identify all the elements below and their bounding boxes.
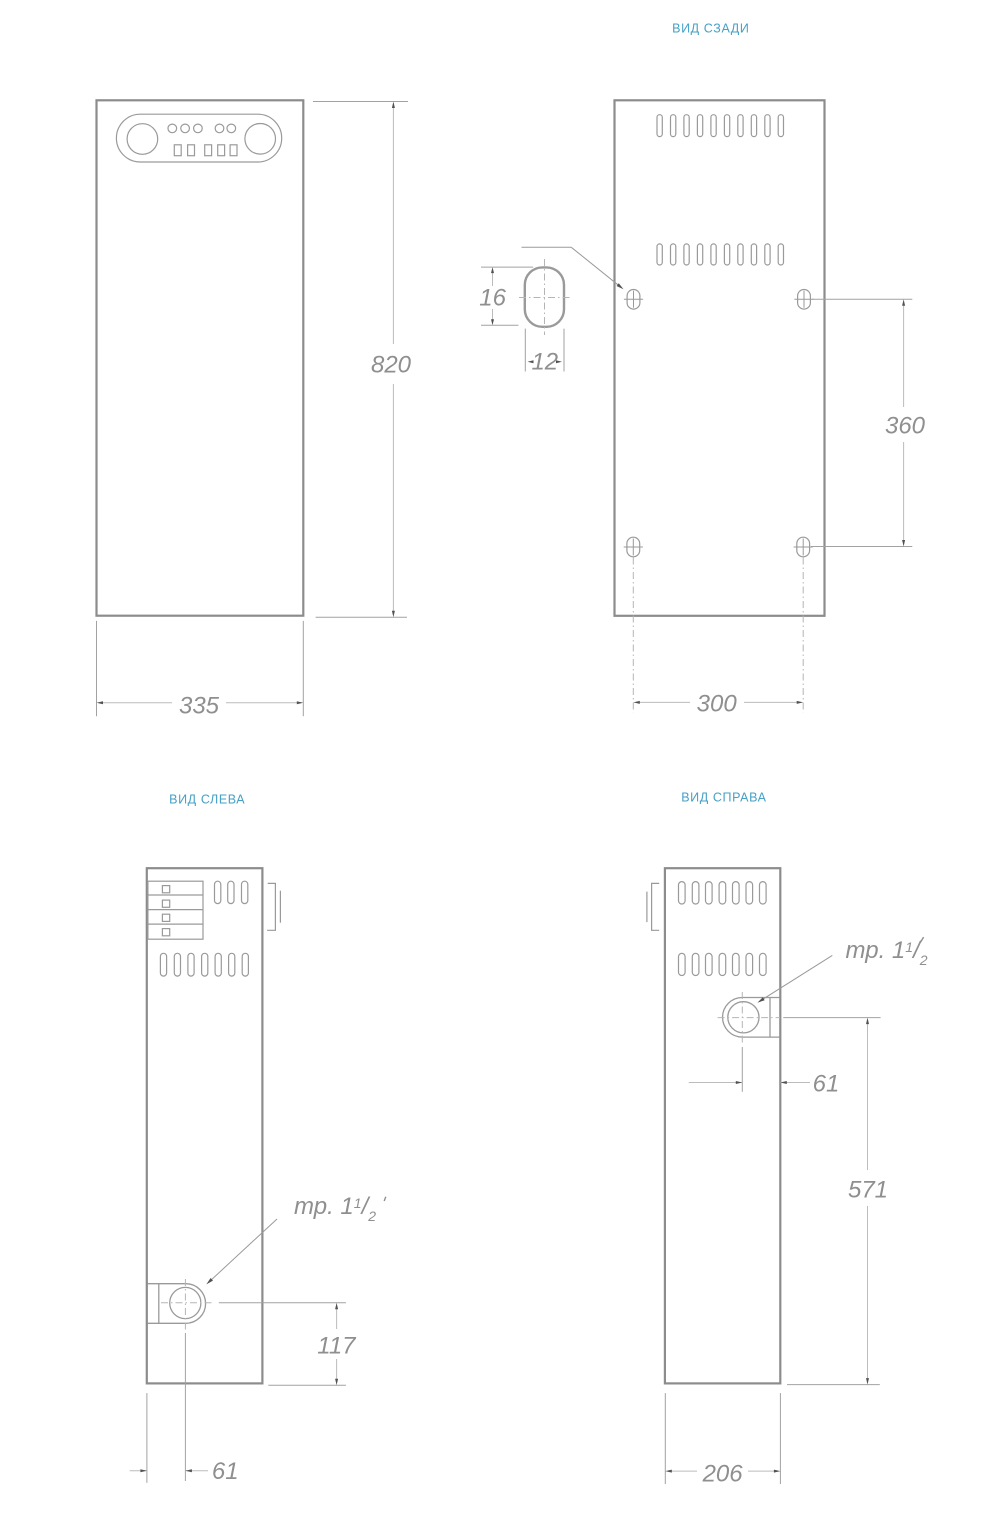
svg-text:335: 335 — [179, 693, 220, 720]
svg-text:ВИД СЗАДИ: ВИД СЗАДИ — [672, 22, 749, 36]
svg-text:12: 12 — [531, 349, 558, 376]
svg-text:206: 206 — [702, 1461, 744, 1488]
svg-text:тр. 11/2: тр. 11/2 — [846, 937, 928, 968]
svg-text:ВИД СПРАВА: ВИД СПРАВА — [681, 791, 766, 805]
svg-text:820: 820 — [371, 351, 412, 378]
svg-text:тр. 11/2: тр. 11/2 — [294, 1193, 376, 1224]
svg-text:61: 61 — [813, 1071, 840, 1098]
svg-text:16: 16 — [479, 284, 506, 311]
svg-text:117: 117 — [317, 1332, 357, 1359]
svg-text:61: 61 — [212, 1458, 239, 1485]
svg-text:ВИД СЛЕВА: ВИД СЛЕВА — [169, 793, 245, 807]
svg-text:360: 360 — [885, 413, 926, 440]
svg-text:300: 300 — [697, 691, 738, 718]
svg-text:571: 571 — [848, 1176, 888, 1203]
